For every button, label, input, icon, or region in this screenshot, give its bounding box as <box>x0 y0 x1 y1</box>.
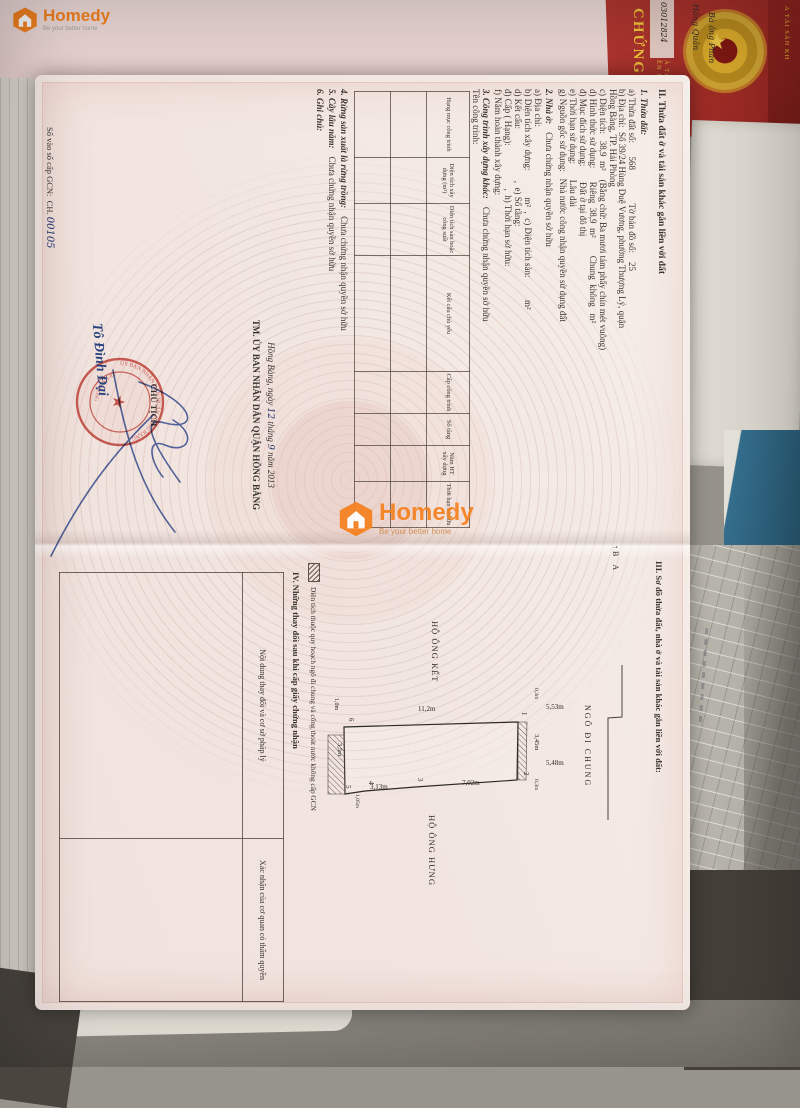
page-right: III. Sơ đồ thửa đất, nhà ở và tài sản kh… <box>35 75 690 1010</box>
handwritten-name-2: Bà ông Phan <box>707 12 716 63</box>
dim-5-53: 5,53m <box>546 703 578 711</box>
legend-text: Diện tích thuộc quy hoạch ngõ đi chung v… <box>310 587 319 811</box>
dim-3-45: 3,45m <box>533 734 540 750</box>
dim-0-3-left: 0,3m <box>533 688 539 699</box>
north-label-a: A <box>611 564 620 570</box>
homedy-tagline: Be your better home <box>379 528 474 536</box>
section-iii-heading: III. Sơ đồ thửa đất, nhà ở và tài sản kh… <box>654 561 664 1006</box>
neighbor-left-label: HỘ ÔNG KẾT <box>430 621 440 682</box>
col-noi-dung-thay-doi: Nội dung thay đổi và cơ sở pháp lý <box>243 573 284 839</box>
dim-5-48: 5,48m <box>546 759 578 767</box>
land-certificate-document: II. Thửa đất ở và tài sản khác gắn liền … <box>35 75 690 1010</box>
handwritten-number: 03012824 <box>659 2 668 43</box>
hatch-legend-icon <box>308 563 320 582</box>
col-xac-nhan: Xác nhận của cơ quan có thẩm quyền <box>243 838 284 1001</box>
changes-table: Nội dung thay đổi và cơ sở pháp lý Xác n… <box>59 572 284 1002</box>
homedy-logo-top: Homedy Be your better home <box>12 7 110 33</box>
handwritten-name-1: Hồng Quân <box>691 4 700 50</box>
dim-7-02: 7,02m <box>462 779 494 787</box>
north-label-b: B <box>611 551 620 556</box>
neighbor-right-label: HỘ ÔNG HƯNG <box>427 815 437 886</box>
dim-3-5: 3,5m <box>336 743 343 756</box>
cover-title-fragment: CHỨNG <box>629 8 646 75</box>
loose-paper <box>680 120 800 469</box>
point-5: 5 <box>344 785 352 789</box>
homedy-hexagon-icon <box>338 501 374 537</box>
dim-1-05: 1,05m <box>354 794 360 808</box>
changes-table-empty-row <box>60 573 243 1002</box>
north-arrow: ↑ B A <box>611 545 620 570</box>
section-iv-heading: IV. Những thay đổi sau khi cấp giấy chứn… <box>291 572 301 749</box>
point-1: 1 <box>520 712 528 716</box>
homedy-wordmark: Homedy <box>43 7 110 24</box>
point-4: 4 <box>367 781 375 785</box>
homedy-tagline: Be your better home <box>43 26 110 32</box>
point-3: 3 <box>416 778 424 782</box>
north-arrow-icon: ↑ <box>611 545 620 549</box>
homedy-hexagon-icon <box>12 7 38 33</box>
dim-11-2: 11,2m <box>418 705 452 713</box>
cover-edge-fragment: A TÀI SẢN KH <box>783 6 790 60</box>
changes-table-header-row: Nội dung thay đổi và cơ sở pháp lý Xác n… <box>243 573 284 1002</box>
photo-scene: ★ CHỨNG ỀN SỬ DỤNG À TÀI SẢN A TÀI SẢN K… <box>0 0 800 1067</box>
point-2: 2 <box>522 772 530 776</box>
homedy-watermark-center: Homedy Be your better home <box>338 501 474 537</box>
dim-1-0: 1,0m <box>333 698 339 710</box>
alley-label: NGÕ ĐI CHUNG <box>583 705 592 787</box>
notebook-shadow <box>744 545 800 917</box>
alley-boundary-line <box>608 665 622 820</box>
homedy-wordmark: Homedy <box>379 501 474 525</box>
dim-0-3-right: 0,3m <box>533 779 539 790</box>
point-6: 6 <box>347 718 355 722</box>
diagram-legend: Diện tích thuộc quy hoạch ngõ đi chung v… <box>308 563 320 811</box>
